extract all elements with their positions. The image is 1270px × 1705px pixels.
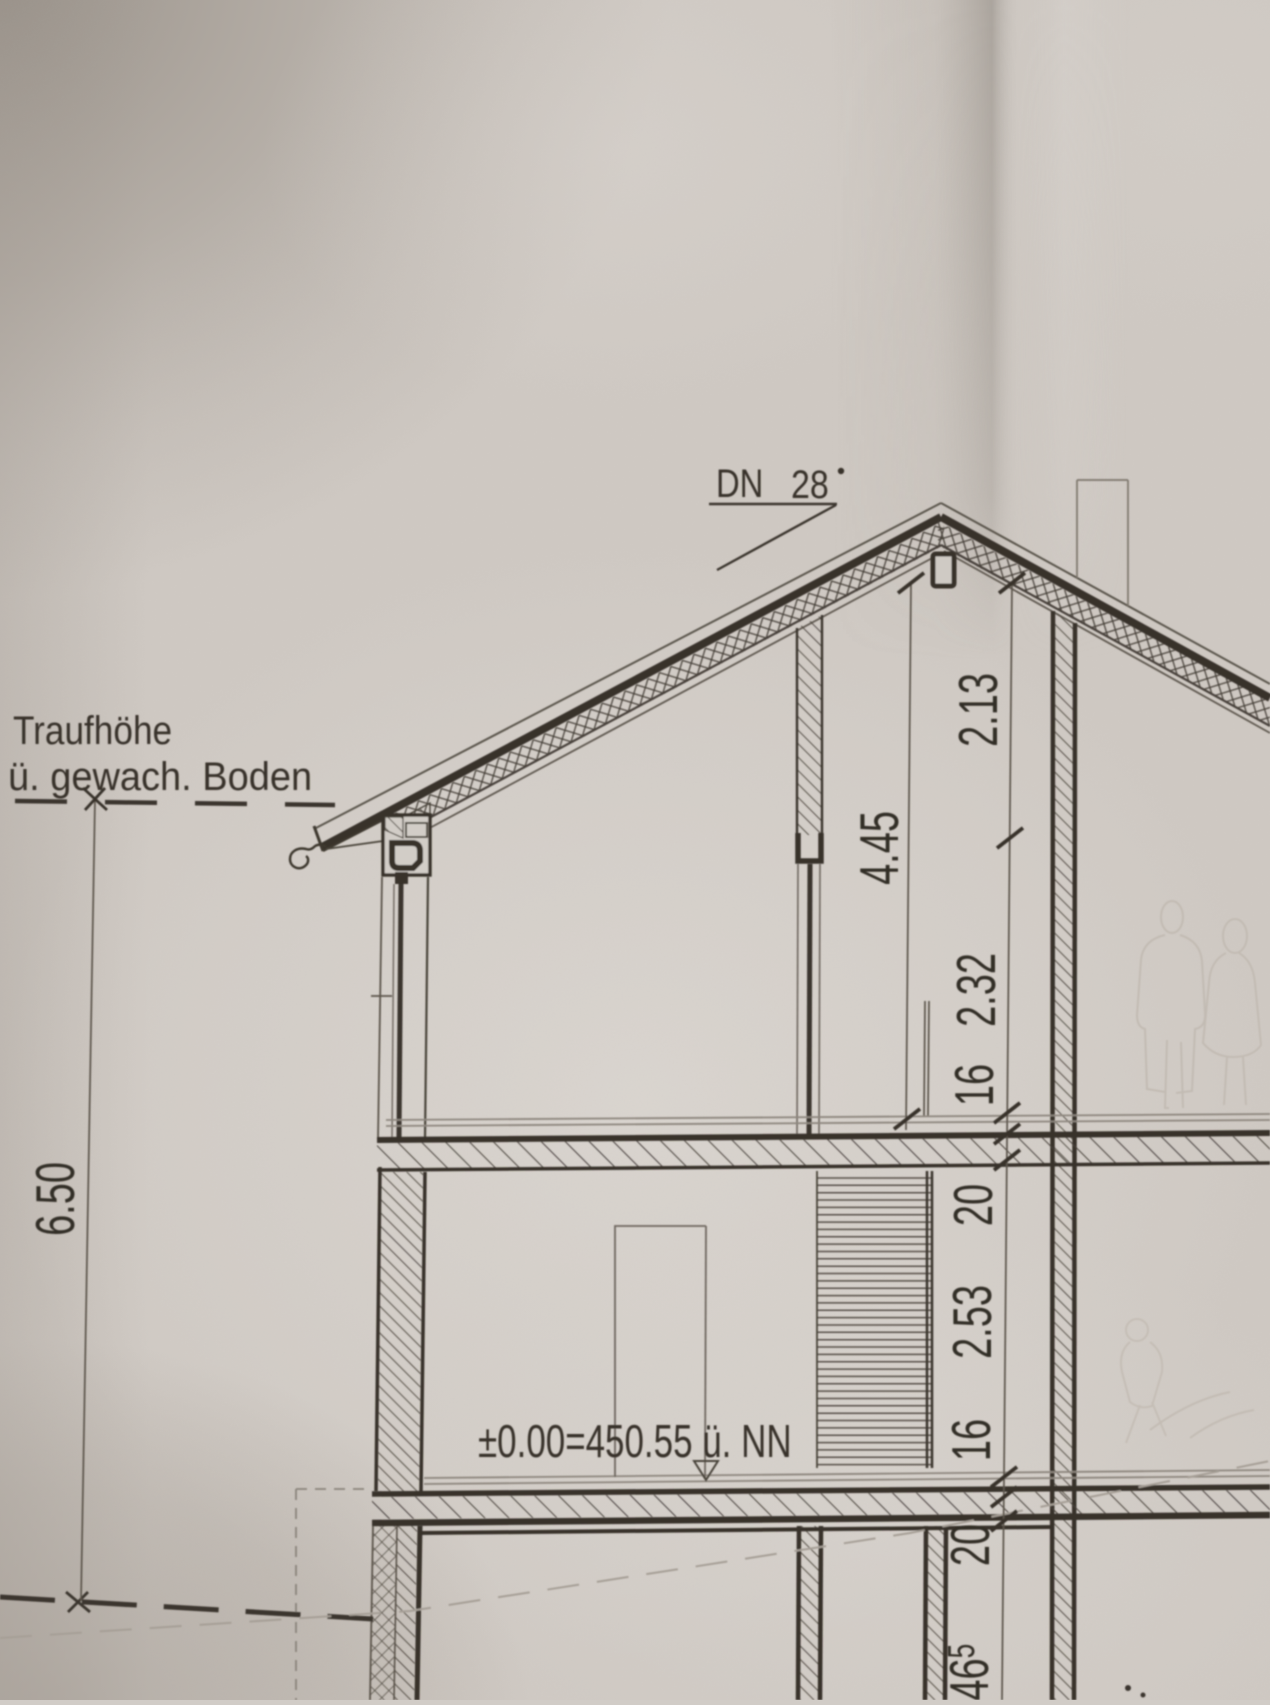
svg-text:ü. gewach. Boden: ü. gewach. Boden xyxy=(8,755,312,799)
svg-text:2.53: 2.53 xyxy=(942,1285,1004,1359)
svg-text:2.32: 2.32 xyxy=(946,953,1008,1027)
svg-text:±0.00=450.55 ü. NN: ±0.00=450.55 ü. NN xyxy=(478,1415,792,1467)
svg-text:28: 28 xyxy=(791,461,829,506)
svg-text:20: 20 xyxy=(940,1524,1002,1566)
svg-text:16: 16 xyxy=(941,1419,1003,1461)
svg-text:4.45: 4.45 xyxy=(849,811,911,885)
svg-text:DN: DN xyxy=(716,461,763,506)
svg-text:20: 20 xyxy=(943,1184,1005,1226)
svg-text:Traufhöhe: Traufhöhe xyxy=(13,708,172,753)
svg-text:6.50: 6.50 xyxy=(25,1162,87,1236)
svg-text:16: 16 xyxy=(944,1064,1006,1106)
svg-text:2.13: 2.13 xyxy=(948,673,1010,747)
